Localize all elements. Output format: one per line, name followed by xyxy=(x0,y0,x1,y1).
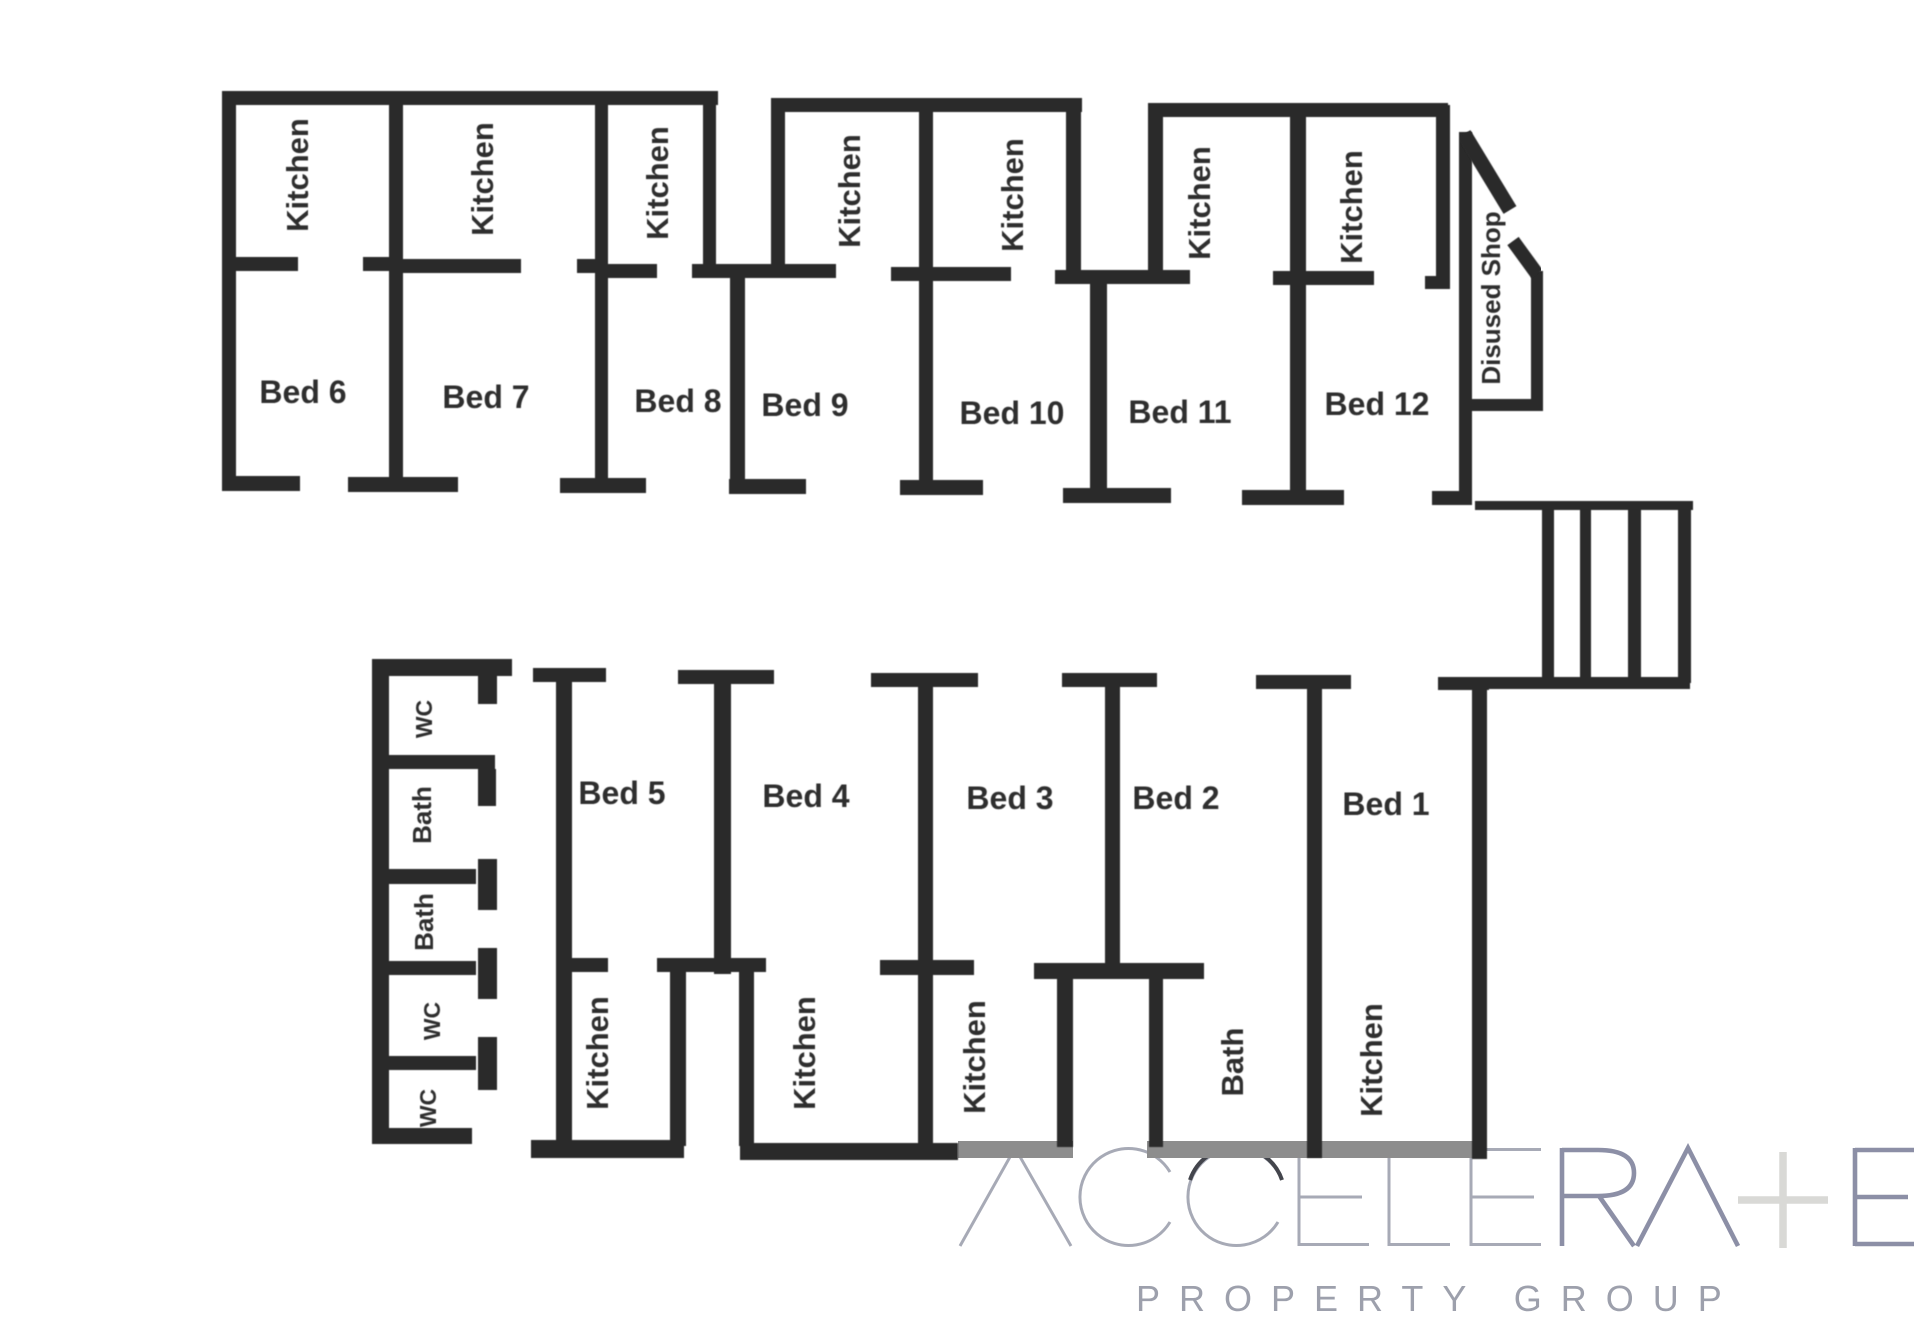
svg-text:Kitchen: Kitchen xyxy=(580,996,615,1110)
svg-text:PROPERTY GROUP: PROPERTY GROUP xyxy=(1136,1278,1741,1318)
svg-text:Kitchen: Kitchen xyxy=(465,122,500,236)
svg-text:Bed 10: Bed 10 xyxy=(960,395,1065,431)
svg-text:Kitchen: Kitchen xyxy=(1354,1003,1389,1117)
svg-text:Kitchen: Kitchen xyxy=(995,138,1030,252)
svg-text:Bed 12: Bed 12 xyxy=(1325,386,1430,422)
svg-text:Bed 7: Bed 7 xyxy=(442,379,529,415)
svg-text:Bed 5: Bed 5 xyxy=(578,775,665,811)
svg-text:Kitchen: Kitchen xyxy=(280,118,315,232)
svg-text:Kitchen: Kitchen xyxy=(1182,146,1217,260)
svg-text:Bath: Bath xyxy=(1215,1028,1250,1097)
svg-text:Kitchen: Kitchen xyxy=(832,134,867,248)
svg-text:Bed 3: Bed 3 xyxy=(966,780,1053,816)
svg-text:Bed 11: Bed 11 xyxy=(1128,394,1231,430)
svg-text:Bed 8: Bed 8 xyxy=(634,383,721,419)
svg-text:Kitchen: Kitchen xyxy=(640,126,675,240)
svg-text:Bed 4: Bed 4 xyxy=(762,778,849,814)
svg-text:Kitchen: Kitchen xyxy=(787,996,822,1110)
svg-text:Kitchen: Kitchen xyxy=(957,1000,992,1114)
svg-text:Bed 9: Bed 9 xyxy=(761,387,848,423)
svg-text:WC: WC xyxy=(411,700,437,738)
svg-text:WC: WC xyxy=(415,1089,441,1127)
svg-text:Bed 1: Bed 1 xyxy=(1342,786,1429,822)
svg-text:Bed 6: Bed 6 xyxy=(259,374,346,410)
svg-text:Bath: Bath xyxy=(407,786,437,844)
svg-text:WC: WC xyxy=(419,1002,445,1040)
svg-text:Bed 2: Bed 2 xyxy=(1132,780,1219,816)
svg-text:Bath: Bath xyxy=(409,893,439,951)
svg-text:Disused Shop: Disused Shop xyxy=(1476,211,1506,384)
svg-text:Kitchen: Kitchen xyxy=(1334,150,1369,264)
